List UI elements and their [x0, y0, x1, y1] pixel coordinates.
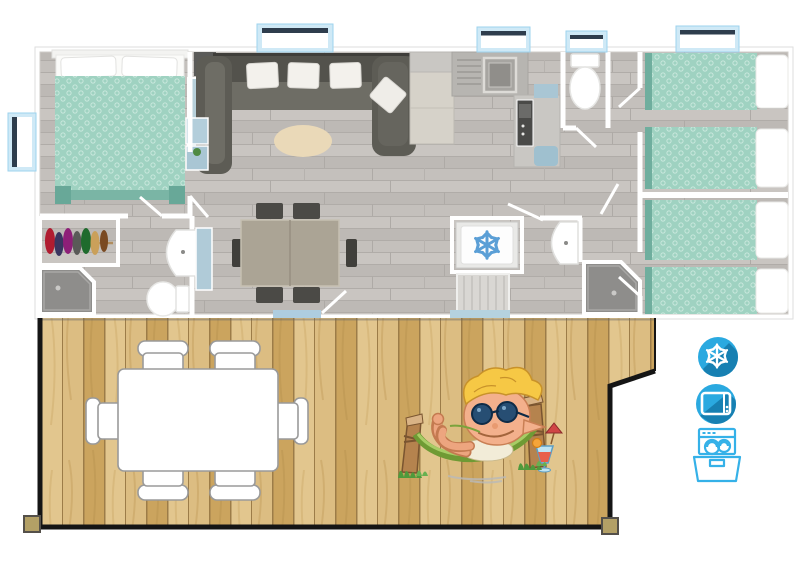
- rear-entrance-mat: [450, 310, 510, 318]
- bathroom-cabinet: [196, 228, 212, 290]
- orange-slice: [533, 439, 542, 448]
- window-living: [257, 24, 333, 52]
- entrance-mat: [273, 310, 321, 318]
- window-wc: [566, 31, 607, 52]
- dining-chair: [293, 203, 320, 219]
- double-bed-duvet: [55, 76, 185, 198]
- window-bedroom: [676, 26, 739, 52]
- outdoor-table: [118, 369, 278, 471]
- window-kitchen: [477, 27, 530, 52]
- shower-drain: [56, 286, 61, 291]
- chair-back: [138, 485, 188, 500]
- rear-door-mat: [457, 274, 509, 312]
- dining-chair: [256, 287, 283, 303]
- toilet-bowl: [570, 67, 600, 109]
- sofa-pillow: [288, 62, 320, 88]
- deck: [24, 318, 655, 534]
- mobile-home-floorplan-page: [0, 0, 800, 565]
- basin-faucet: [564, 241, 568, 245]
- chair-back: [210, 485, 260, 500]
- toilet-bowl: [147, 282, 179, 316]
- sink-basin: [489, 63, 511, 87]
- single-bed-2: [645, 127, 788, 189]
- floorplan: [8, 24, 793, 319]
- elf-nose: [492, 423, 498, 429]
- single-bed-3: [645, 200, 788, 260]
- dining-chair: [256, 203, 283, 219]
- window-left: [8, 113, 36, 171]
- duvet-corner: [169, 186, 185, 204]
- counter-blue-accent: [534, 84, 558, 98]
- oven-window: [519, 104, 531, 118]
- deck-post: [602, 518, 618, 534]
- toilet-tank: [176, 286, 189, 312]
- sunglasses-right-lens: [497, 402, 517, 422]
- single-bed-4: [645, 267, 788, 314]
- corner-shower: [40, 268, 94, 314]
- oval-rug: [274, 125, 332, 157]
- oven-dial: [522, 133, 525, 136]
- duvet-corner: [55, 186, 71, 204]
- floorplan-canvas: [0, 0, 800, 565]
- dining-chair: [346, 239, 357, 267]
- shower-drain: [612, 291, 617, 296]
- counter-blue-accent: [534, 146, 558, 166]
- sunglasses-left-lens: [472, 404, 492, 424]
- oven-dial: [522, 125, 525, 128]
- sofa-pillow: [330, 62, 362, 88]
- pillow: [122, 56, 178, 78]
- kitchen-upper-cabinet: [410, 52, 454, 72]
- lens-glint: [477, 408, 481, 412]
- lens-glint: [502, 406, 506, 410]
- sofa-pillow: [246, 62, 278, 89]
- pillow: [61, 56, 117, 78]
- single-bed-1: [645, 53, 788, 110]
- plant: [193, 148, 201, 156]
- duvet-foot-band: [55, 190, 185, 200]
- basin-faucet: [181, 250, 185, 254]
- dining-chair: [293, 287, 320, 303]
- elf-foot: [433, 414, 444, 425]
- washbasin: [167, 230, 197, 276]
- toilet-tank: [571, 54, 599, 67]
- deck-post: [24, 516, 40, 532]
